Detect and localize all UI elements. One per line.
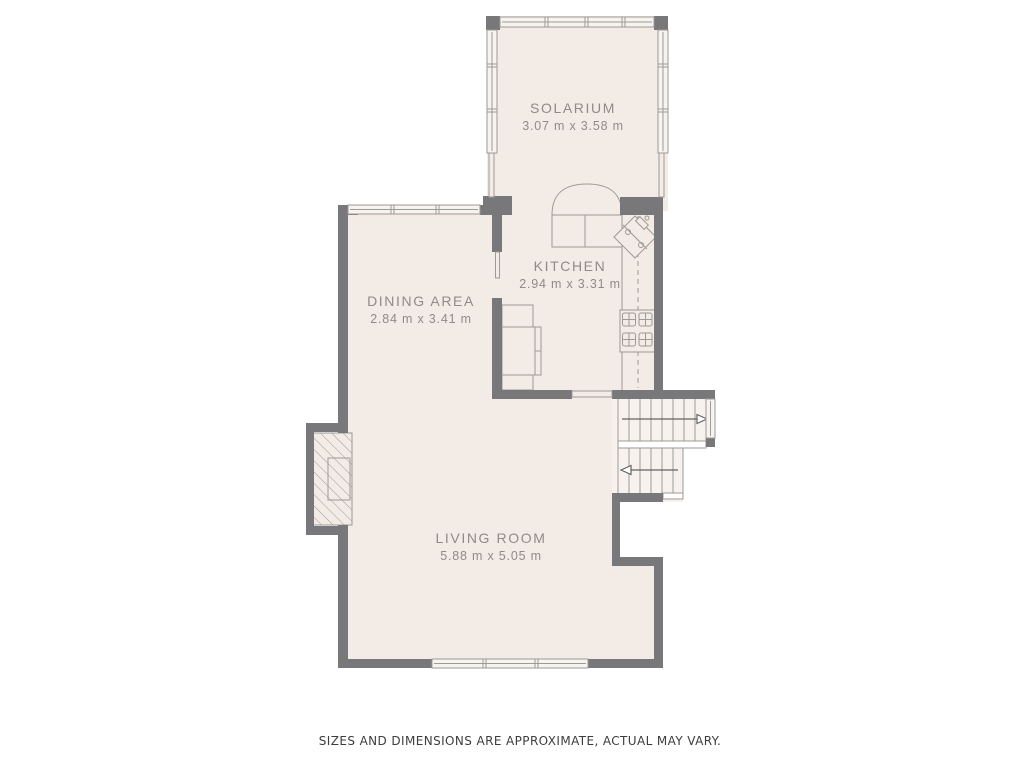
floorplan-page: SOLARIUM 3.07 m x 3.58 m KITCHEN 2.94 m … — [0, 0, 1024, 768]
divider-door-jamb — [496, 252, 500, 278]
kitchen-dims: 2.94 m x 3.31 m — [519, 277, 621, 291]
wall-divider-lower — [492, 298, 502, 398]
wall-kitchen-right — [654, 215, 663, 390]
wall-divider-upper — [492, 215, 502, 252]
fireplace-bay-wall-left — [306, 423, 314, 535]
wall-living-right-upper — [612, 493, 620, 566]
dining-dims: 2.84 m x 3.41 m — [370, 312, 472, 326]
living-label: LIVING ROOM — [436, 530, 547, 546]
exterior-notch — [620, 502, 678, 557]
disclaimer-text: SIZES AND DIMENSIONS ARE APPROXIMATE, AC… — [319, 734, 721, 748]
stair-window — [706, 399, 715, 438]
living-window — [432, 659, 588, 668]
living-dims: 5.88 m x 5.05 m — [440, 549, 542, 563]
kitchen-label: KITCHEN — [534, 258, 607, 274]
wall-stair-right-post — [706, 438, 715, 447]
solarium-post-top-left — [486, 16, 500, 30]
kitchen-opening-sill — [572, 391, 612, 397]
floorplan-svg: SOLARIUM 3.07 m x 3.58 m KITCHEN 2.94 m … — [0, 0, 1024, 768]
solarium-screen-left — [489, 153, 494, 197]
solarium-screen-right — [659, 153, 664, 197]
dining-window — [348, 205, 480, 214]
wall-bottom-right — [588, 659, 663, 668]
fireplace-icon — [313, 433, 352, 525]
solarium-dims: 3.07 m x 3.58 m — [522, 119, 624, 133]
stove-icon — [620, 310, 655, 352]
fireplace-hatch — [313, 433, 352, 525]
wall-stair-top — [612, 390, 715, 399]
solarium-post-bottom-left — [486, 197, 500, 211]
solarium-label: SOLARIUM — [530, 100, 616, 116]
stair-landing-strip — [663, 493, 683, 499]
fireplace-bay-wall-bottom — [306, 526, 348, 535]
wall-living-right-lower — [654, 557, 663, 668]
solarium-post-top-right — [654, 16, 668, 30]
wall-bottom-left — [338, 659, 432, 668]
wall-left-lower — [338, 525, 348, 668]
wall-left-upper — [338, 205, 348, 433]
solarium-window-top — [500, 17, 654, 27]
stair-rail-gap — [618, 441, 706, 448]
wall-solarium-kitchen-right — [620, 197, 663, 215]
dining-label: DINING AREA — [367, 293, 475, 309]
wall-kitchen-bottom — [492, 390, 572, 399]
